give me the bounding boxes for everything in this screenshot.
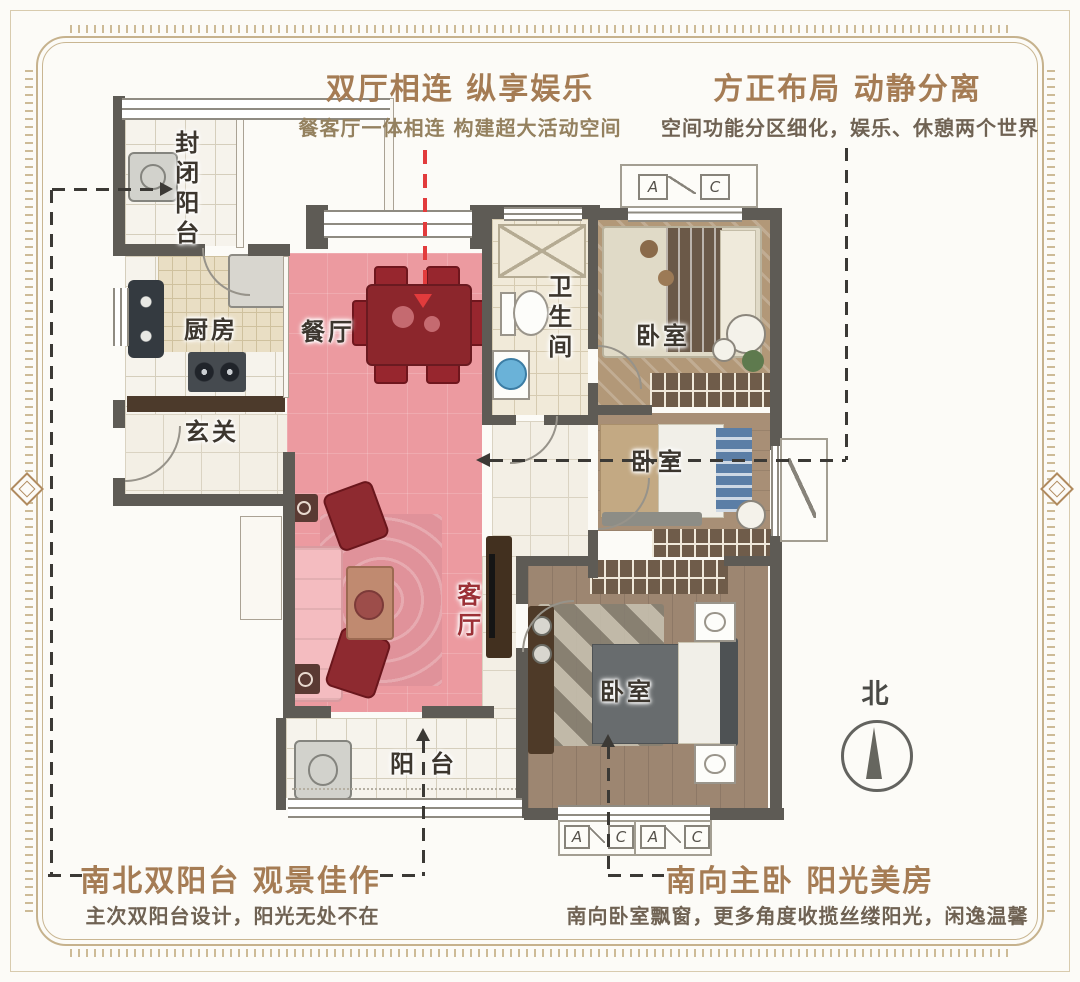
teddy-bear [658,270,674,286]
frame-band-top [70,25,1010,33]
frame-band-bottom [70,949,1010,957]
window-kitchen [113,288,129,346]
wall-segment [113,494,295,506]
vanity-stool [712,338,736,362]
wall-segment [724,556,782,566]
compass-needle-icon [866,727,882,779]
window-mark-c: C [608,825,634,849]
dashed-line-bottom-left-h3 [380,874,424,877]
ac-platform [240,516,282,620]
wall-segment [588,530,598,578]
room-label-kitchen: 厨房 [184,316,238,345]
vanity-stool-mid [736,500,766,530]
room-label-south-balcony: 阳台 [390,750,470,779]
balcony-edge-line [236,112,244,248]
annotation-title-top-right: 方正布局 动静分离 [675,64,1020,108]
wall-segment [588,219,598,349]
table-decor [392,306,414,328]
window-mark-diagonal [589,827,605,843]
wall-segment [482,219,492,425]
plant [742,350,764,372]
annotation-title-bottom-right: 南向主卧 阳光美房 [655,856,945,900]
window-mark-diagonal [665,827,681,843]
wall-segment [276,718,286,810]
master-headboard [720,638,738,746]
gas-stove [188,352,246,392]
dashed-line-bottom-right-h [608,874,664,877]
annotation-subtitle-bottom-left: 主次双阳台设计，阳光无处不在 [60,900,405,929]
wall-segment [422,706,494,718]
table-decor [424,316,440,332]
arrowhead-right-icon [160,182,173,196]
window-mark-diagonal [668,176,696,194]
wardrobe [652,529,774,557]
bay-window-glyph [788,458,816,518]
annotation-subtitle-bottom-right: 南向卧室飘窗，更多角度收揽丝缕阳光，闲逸温馨 [550,900,1045,929]
master-bed-pillows [678,642,724,744]
room-label-bedroom-top: 卧室 [636,322,690,351]
arrowhead-up-icon [416,728,430,741]
shoe-cabinet [127,396,285,412]
dashed-line-bottom-right-v [607,746,610,876]
master-wardrobe [590,560,728,594]
room-label-bathroom: 卫生间 [543,274,572,364]
annotation-title-bottom-left: 南北双阳台 观景佳作 [78,856,383,900]
wash-basin [495,358,527,390]
annotation-title-top-left: 双厅相连 纵享娱乐 [285,64,635,108]
annotation-subtitle-top-left: 餐客厅一体相连 构建超大活动空间 [255,112,665,141]
window-mark-c: C [684,825,710,849]
window-mark-c: C [700,174,730,200]
wall-segment [770,534,782,820]
wall-segment [283,452,295,718]
wall-segment [516,648,528,818]
dashed-line-bottom-left-v2 [422,740,425,876]
dashed-line-bottom-left-h2 [52,188,160,191]
teddy-bear [640,240,658,258]
wall-segment [283,706,331,718]
room-label-entry: 玄关 [185,418,239,447]
shower-area [498,224,586,278]
kitchen-divider-line [283,256,289,398]
window-bathroom [504,207,582,221]
compass-north-label: 北 [845,672,905,711]
bed-pillows-mid [716,428,752,512]
room-label-living: 客厅 [452,582,481,642]
wall-segment [113,400,125,428]
window-south-balcony [288,798,522,818]
balcony-cabinet [294,740,352,800]
nightstand [694,602,736,642]
tv-screen [489,554,495,638]
window-dining [324,210,472,238]
red-dashed-arrow-line [423,150,427,296]
nightstand [694,744,736,784]
coffee-table-plant [354,590,384,620]
red-arrowhead-down-icon [414,294,432,308]
wall-segment [588,405,652,415]
wardrobe [650,373,772,407]
wall-segment [598,208,632,220]
arrowhead-left-icon [476,453,490,467]
balcony-dotted-line [292,788,520,790]
window-mark-a: A [638,174,668,200]
dashed-line-top-right-h [490,459,846,462]
room-label-bedroom-master: 卧室 [600,678,654,707]
arrowhead-up-icon [601,734,615,747]
room-label-north-balcony: 封闭阳台 [170,130,199,250]
floorplan-poster: A C A C A C 封闭阳台 厨房 玄关 餐厅 客厅 卫生间 卧室 卧室 卧… [0,0,1080,982]
room-label-bedroom-mid: 卧室 [631,448,685,477]
dashed-line-top-right-v [845,148,848,460]
room-label-dining: 餐厅 [301,318,355,347]
dashed-line-bottom-left-v1 [50,190,53,876]
annotation-subtitle-top-right: 空间功能分区细化，娱乐、休憩两个世界 [645,112,1055,141]
wall-segment [516,556,594,566]
window-mark-a: A [640,825,666,849]
dashed-line-bottom-left-h1 [48,874,82,877]
window-mark-a: A [564,825,590,849]
wall-segment [770,208,782,450]
wall-segment [248,244,290,256]
kitchen-sink [128,280,164,358]
